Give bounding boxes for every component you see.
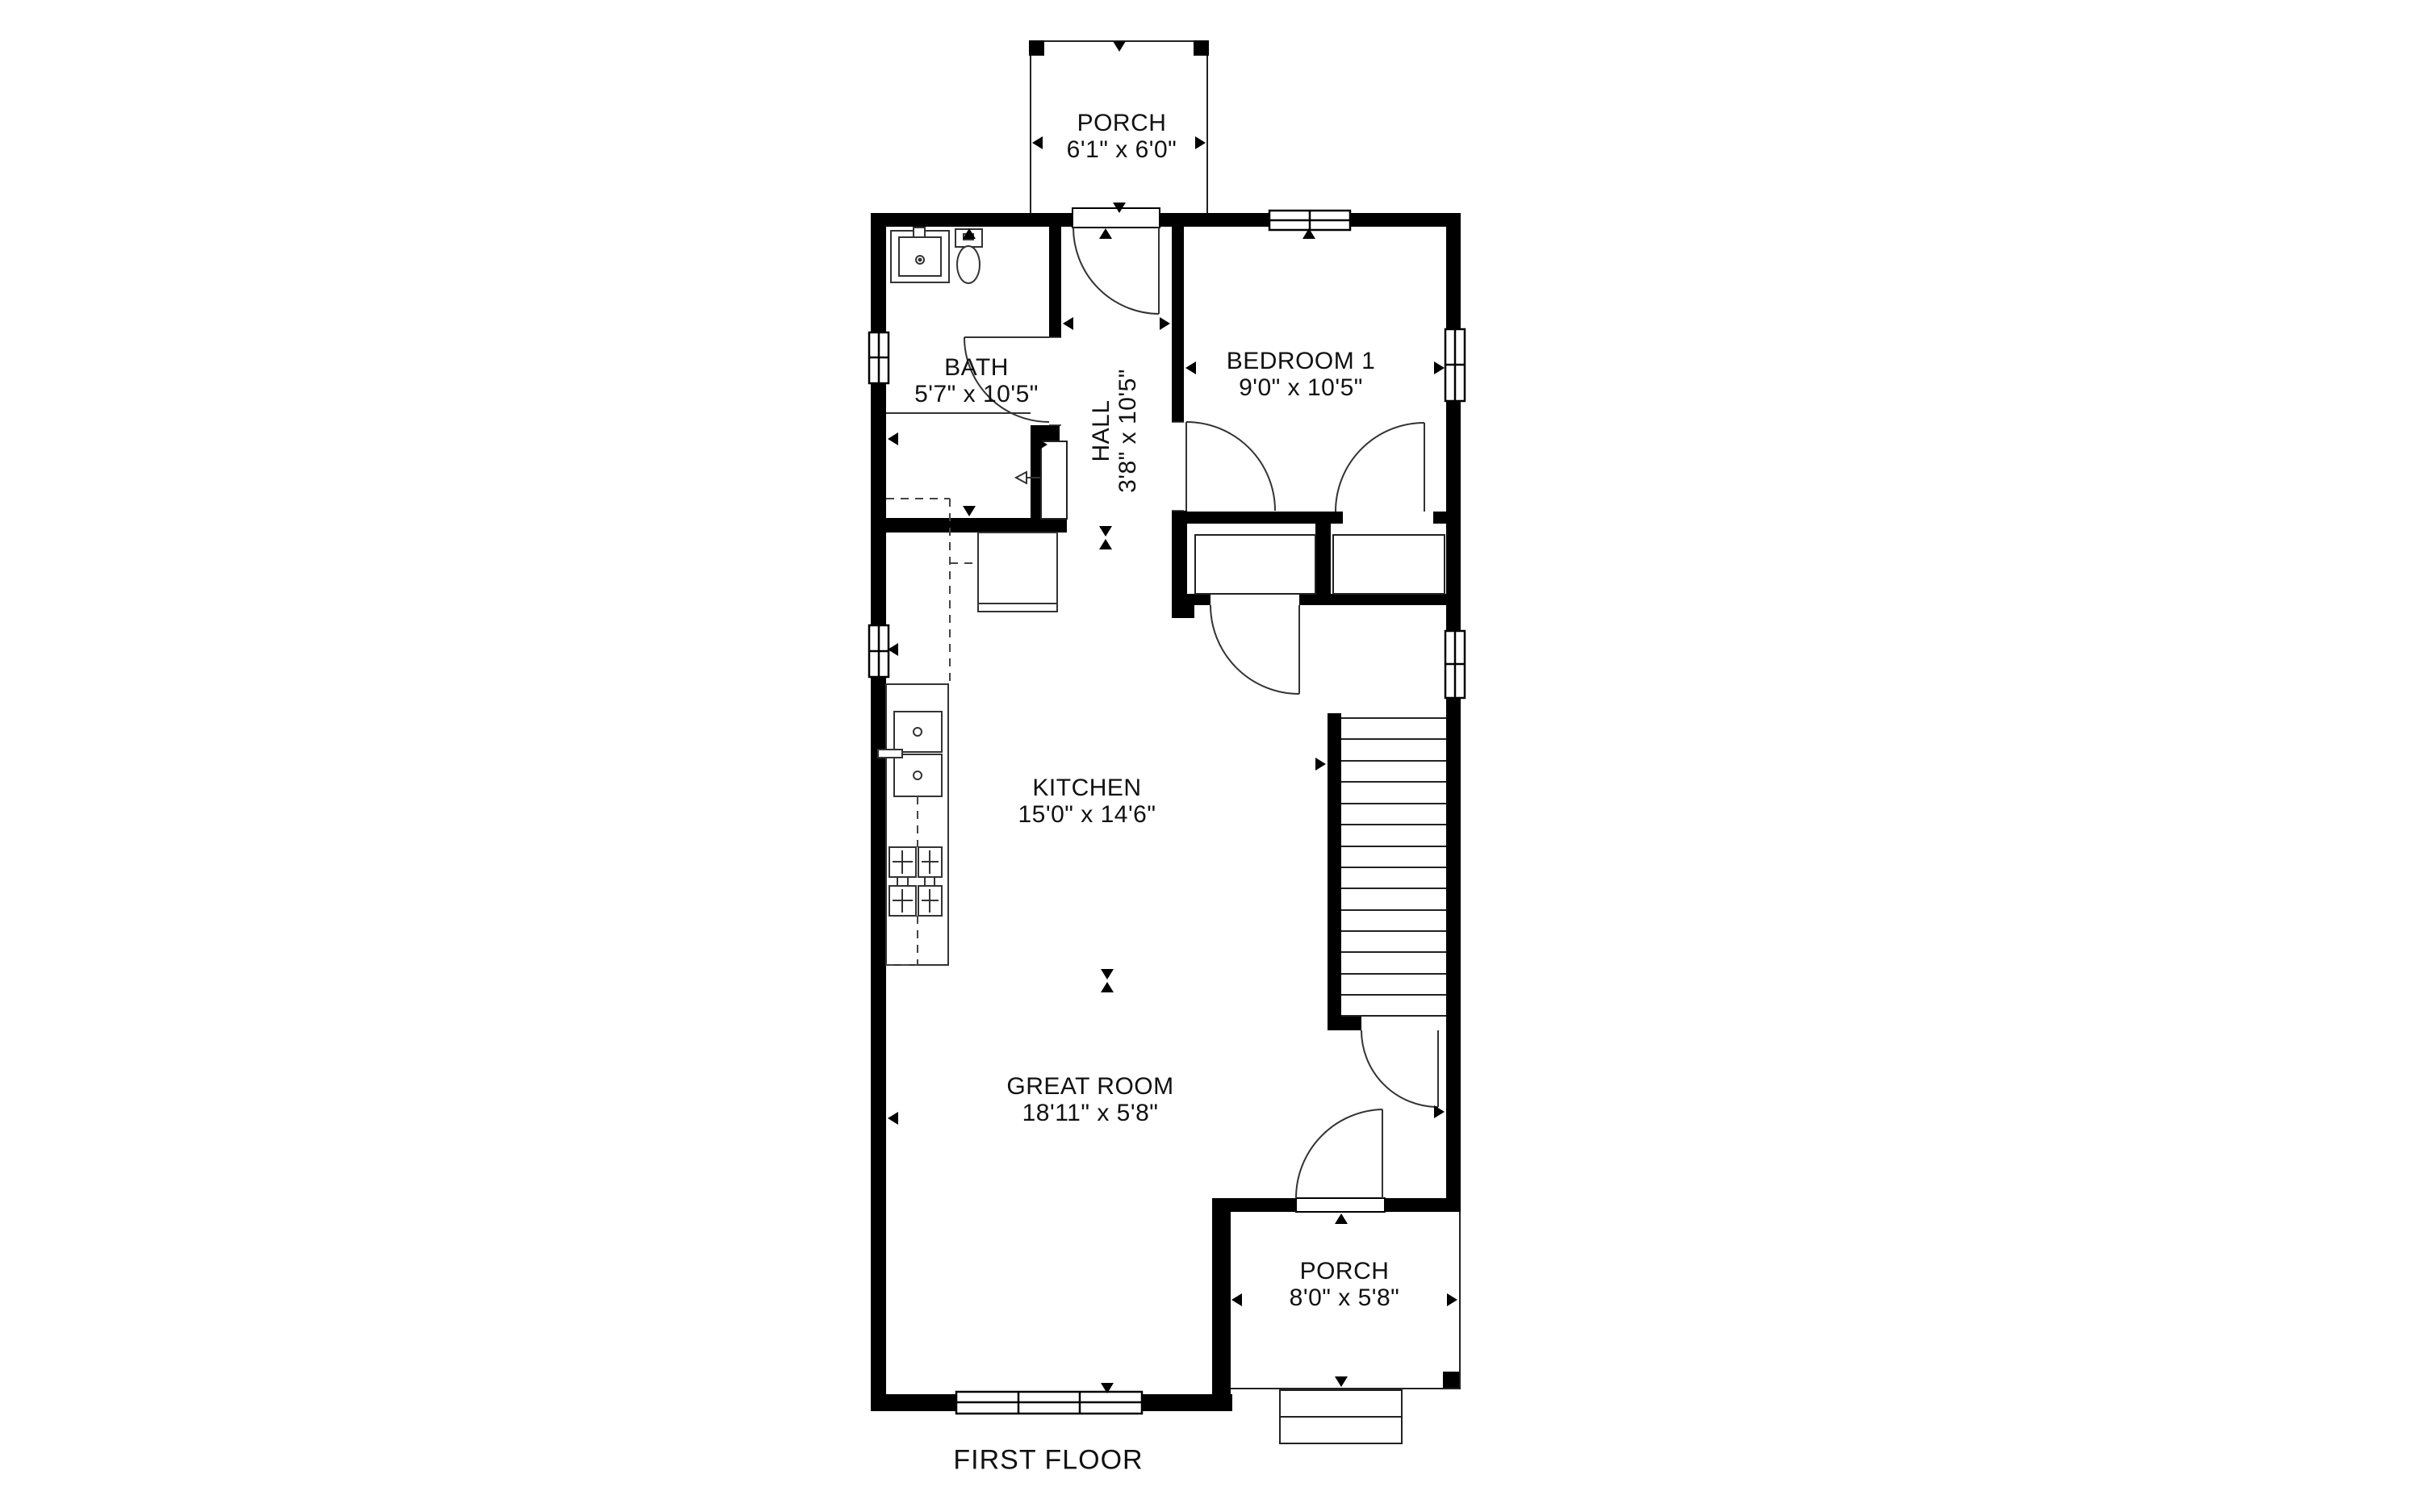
room-label-porch-top: PORCH 6'1" x 6'0" [1067, 110, 1177, 163]
bath-south-wall [871, 518, 1067, 533]
room-dims: 9'0" x 10'5" [1239, 374, 1363, 401]
hall-bedroom-wall [1172, 227, 1184, 422]
closet-south-wall-b [1299, 594, 1461, 605]
room-label-bath: BATH 5'7" x 10'5" [914, 354, 1039, 407]
refrigerator [978, 533, 1057, 612]
room-dims: 18'11" x 5'8" [1022, 1100, 1159, 1126]
room-name: GREAT ROOM [1006, 1073, 1173, 1100]
window-bedroom-east [1445, 329, 1465, 401]
porch-west-wall [1212, 1198, 1231, 1411]
window-greatroom-south [956, 1392, 1142, 1414]
room-label-bedroom1: BEDROOM 1 9'0" x 10'5" [1227, 348, 1376, 401]
porch-steps [1280, 1390, 1402, 1443]
bath-chase-wall [1031, 441, 1041, 520]
room-name: HALL [1088, 399, 1114, 462]
staircase [1328, 713, 1446, 1030]
stair-door [1361, 1030, 1438, 1107]
kitchen-fixtures [878, 499, 1057, 965]
bedroom-closet-door [1336, 423, 1424, 512]
room-dims: 15'0" x 14'6" [1018, 801, 1156, 828]
floor-plan-drawing [0, 0, 2421, 1512]
porch-door-threshold [1296, 1198, 1385, 1212]
stair-treads [1341, 718, 1446, 1016]
room-name: BEDROOM 1 [1227, 348, 1376, 374]
room-label-great-room: GREAT ROOM 18'11" x 5'8" [1006, 1073, 1173, 1126]
room-label-hall: HALL 3'8" x 10'5" [1088, 369, 1141, 493]
porch-corner-post [1443, 1372, 1461, 1389]
bath-jog-wall [1031, 425, 1060, 441]
bedroom-door-opening [1172, 422, 1184, 511]
room-dims: 3'8" x 10'5" [1114, 369, 1141, 493]
porch-entry-door [1296, 1109, 1382, 1198]
bath-east-wall [1049, 227, 1061, 337]
floor-plan-page: PORCH 6'1" x 6'0" BATH 5'7" x 10'5" HALL… [0, 0, 2421, 1512]
closet-south-wall-a [1172, 594, 1210, 605]
closet-divider-wall [1315, 524, 1331, 594]
room-label-kitchen: KITCHEN 15'0" x 14'6" [1018, 775, 1156, 828]
closet-west-wall [1172, 511, 1187, 605]
room-name: PORCH [1300, 1258, 1390, 1284]
wall-north [871, 213, 1461, 227]
front-door-threshold [1073, 208, 1160, 228]
room-dims: 6'1" x 6'0" [1067, 136, 1177, 163]
room-name: PORCH [1077, 110, 1167, 136]
room-name: KITCHEN [1032, 775, 1141, 801]
bath-sink [891, 228, 949, 282]
bedroom-south-wall-b [1433, 512, 1461, 524]
window-bath-west [869, 332, 889, 383]
stair-foot-wall [1328, 1017, 1361, 1030]
closet-right-panel [1333, 535, 1445, 594]
window-kitchen-west [869, 625, 889, 677]
front-door [1073, 227, 1159, 314]
window-stair-east [1445, 631, 1465, 698]
room-name: BATH [944, 354, 1009, 381]
bath-door-opening [1049, 337, 1061, 425]
bedroom-door [1186, 422, 1275, 511]
wall-west [871, 213, 886, 1411]
hall-cabinet [1041, 441, 1067, 519]
closet-left-panel [1195, 535, 1315, 594]
room-dims: 8'0" x 5'8" [1290, 1284, 1400, 1311]
room-label-porch-bottom: PORCH 8'0" x 5'8" [1290, 1258, 1400, 1311]
room-dims: 5'7" x 10'5" [914, 381, 1039, 407]
pantry-closet-door [1210, 605, 1299, 694]
stair-west-wall [1328, 713, 1341, 1030]
window-bedroom-north [1269, 211, 1350, 230]
floor-title: FIRST FLOOR [953, 1445, 1143, 1476]
